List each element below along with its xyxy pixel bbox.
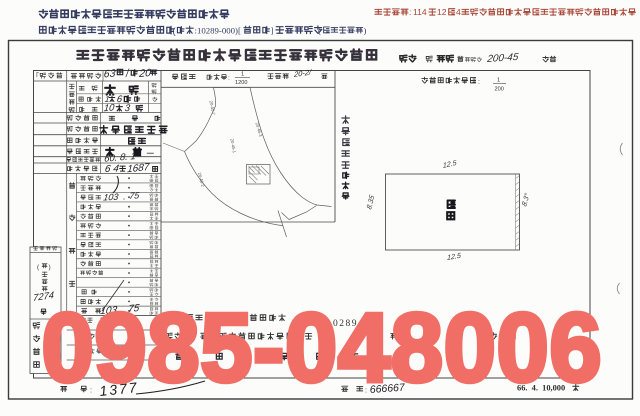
- svg-text:1: 1: [497, 78, 500, 84]
- svg-text:20: 20: [138, 67, 152, 80]
- svg-text:103: 103: [103, 192, 119, 203]
- svg-text::10289-000)[: :10289-000)[: [195, 26, 241, 36]
- svg-text:「: 「: [32, 72, 40, 81]
- svg-text:1200: 1200: [235, 80, 247, 86]
- svg-text::: :: [409, 7, 411, 17]
- svg-text:(: (: [318, 26, 321, 36]
- svg-text:63: 63: [103, 67, 116, 80]
- svg-text::: :: [228, 75, 230, 82]
- svg-text:4: 4: [456, 7, 461, 17]
- svg-text::: :: [478, 79, 480, 86]
- svg-text:): ): [49, 264, 51, 271]
- svg-text:200-45: 200-45: [486, 52, 520, 65]
- svg-text:(: (: [173, 26, 176, 36]
- svg-text:]: ]: [271, 26, 274, 36]
- svg-text:6 4: 6 4: [104, 164, 120, 175]
- svg-text:1: 1: [241, 72, 244, 78]
- svg-text:12: 12: [437, 7, 447, 17]
- svg-text:200: 200: [495, 87, 504, 93]
- svg-text:0985-048006: 0985-048006: [42, 293, 603, 402]
- svg-text:114: 114: [413, 7, 427, 17]
- svg-text:): ): [364, 26, 367, 36]
